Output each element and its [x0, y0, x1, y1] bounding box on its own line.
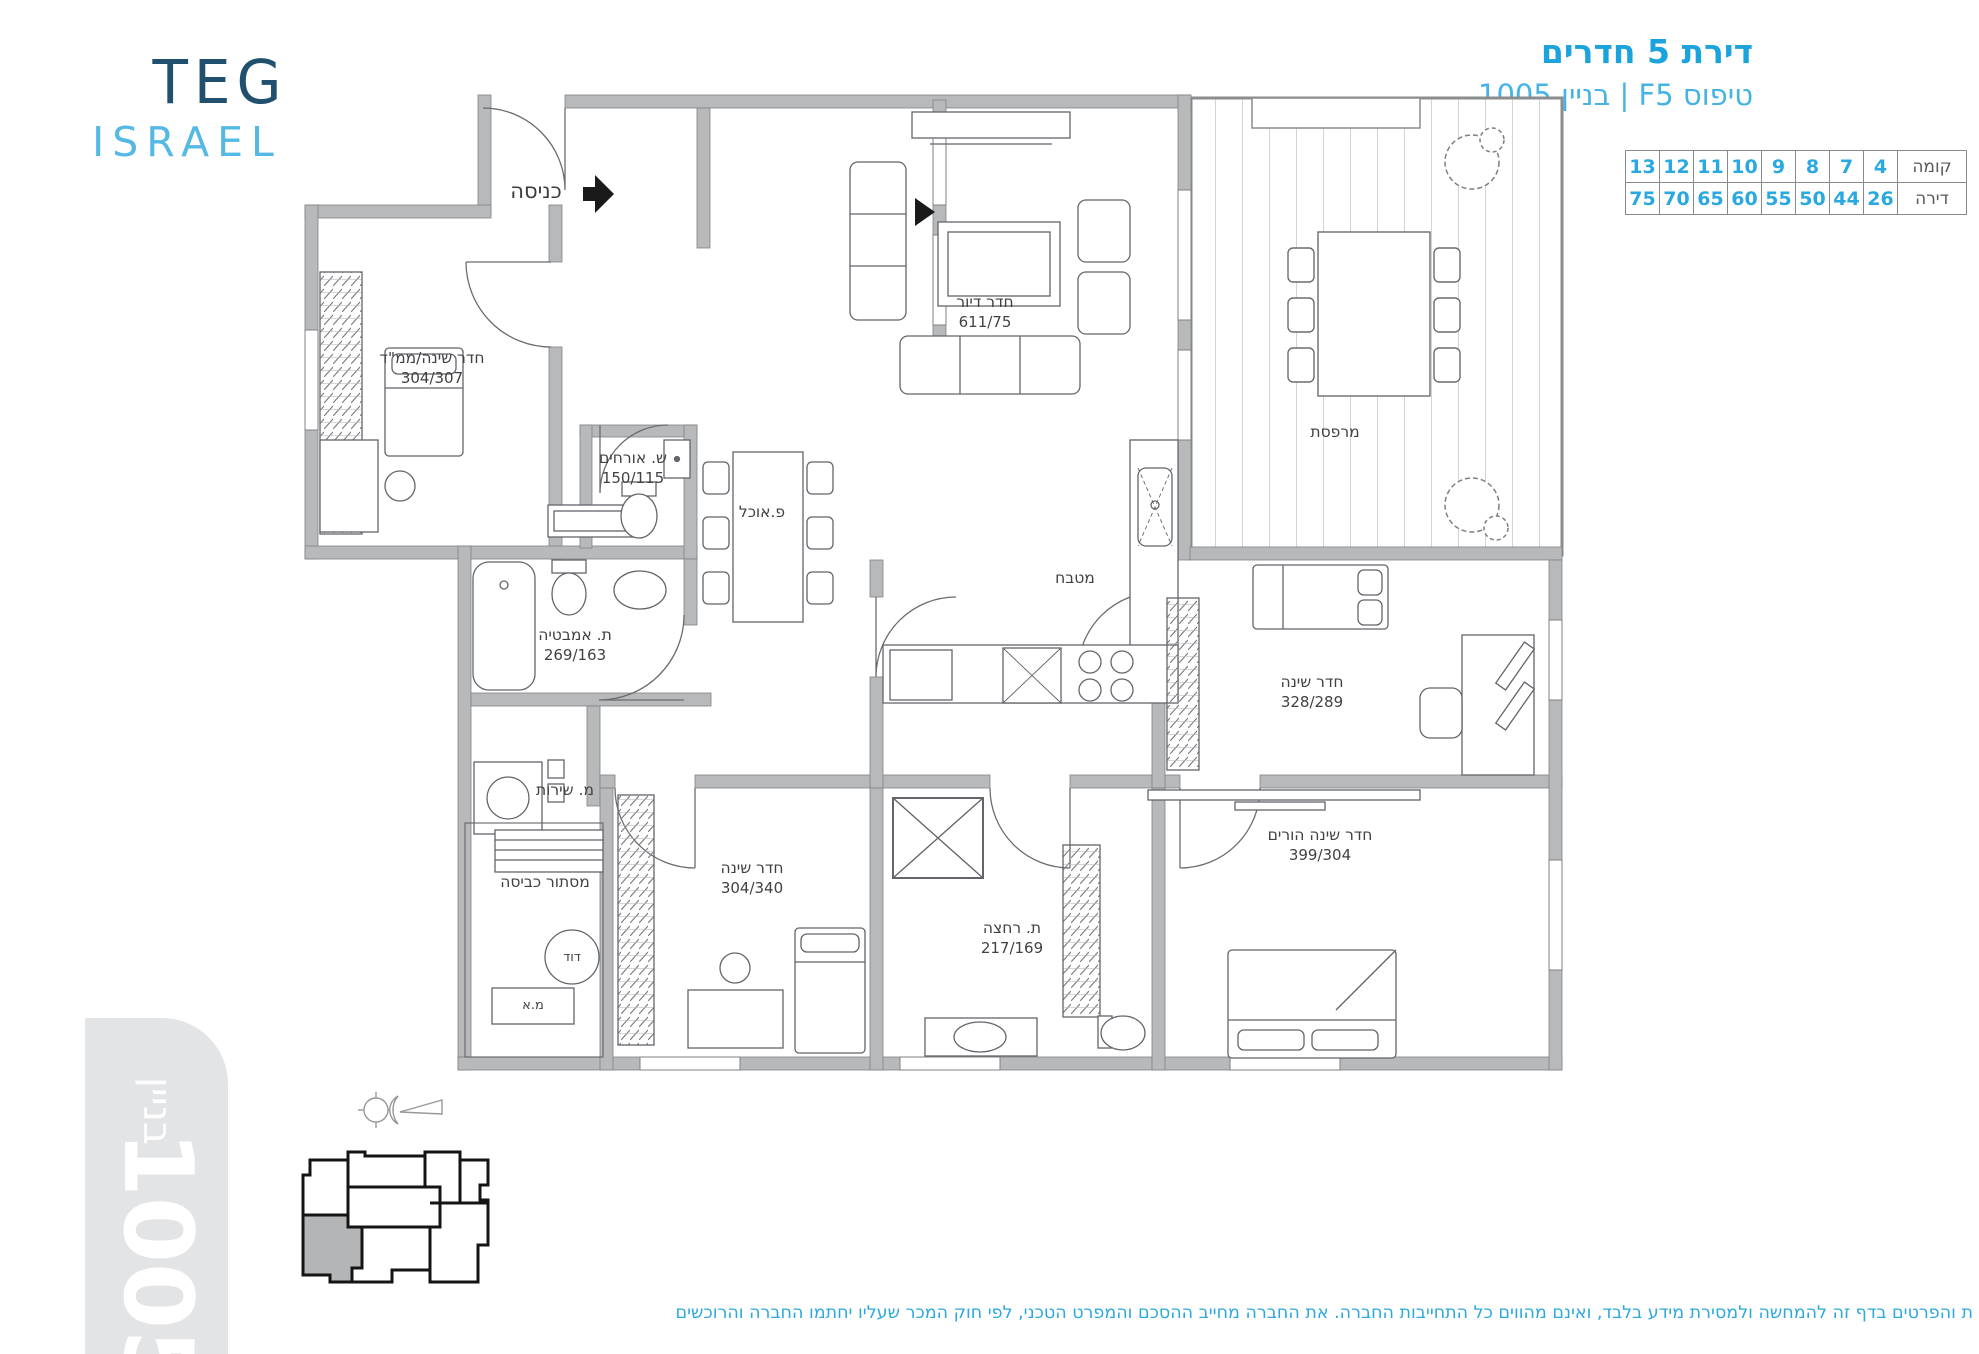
planter-box	[1252, 98, 1420, 128]
floor-plan-drawing	[0, 0, 1979, 1354]
room-label-parents: חדר שינה הורים 399/304	[1220, 825, 1420, 865]
room-name: מסתור כביסה	[500, 873, 589, 891]
room-name: חדר שינה	[1280, 673, 1343, 691]
room-name: ש. אורחים	[599, 449, 667, 467]
bed-bed2	[795, 928, 865, 1053]
bed-parents	[1228, 950, 1396, 1058]
room-label-service: מ. שירות	[500, 780, 630, 800]
room-label-bath: ת. אמבטיה 269/163	[475, 625, 675, 665]
balcony-group	[1191, 98, 1562, 555]
room-label-mamad: חדר שינה/ממ"ד 304/307	[332, 348, 532, 388]
fridge	[890, 650, 952, 700]
room-label-kitchen: מטבח	[990, 568, 1160, 588]
tv-parents	[1148, 790, 1420, 810]
north-arrow	[358, 1092, 442, 1128]
badge-building-number: 1005	[102, 1131, 212, 1354]
room-name: חדר שינה הורים	[1268, 826, 1373, 844]
room-name: ת. רחצה	[983, 919, 1041, 937]
room-dims: 304/307	[332, 368, 532, 388]
sofa-main	[900, 336, 1080, 394]
room-label-living: חדר דיור 611/75	[885, 292, 1085, 332]
laundry-shaft	[465, 823, 603, 1057]
entrance-label: כניסה	[492, 179, 580, 203]
armchair	[1078, 200, 1130, 262]
desk-bed2	[688, 953, 783, 1048]
room-dims: 611/75	[885, 312, 1085, 332]
room-label-dining: פ.אוכל	[712, 502, 812, 522]
room-name: מרפסת	[1310, 423, 1359, 441]
armchair	[1078, 272, 1130, 334]
building-badge: בניין 1005	[85, 1018, 228, 1354]
balcony-exit-arrow	[915, 198, 935, 226]
toilet-bath2	[1098, 1016, 1145, 1050]
desk-bed3	[1420, 635, 1534, 775]
toilet-guest	[621, 482, 657, 538]
room-dims: 304/340	[652, 878, 852, 898]
ac-label: מ.א	[503, 998, 563, 1013]
boiler-label: דוד	[542, 950, 602, 965]
room-name: מטבח	[1055, 569, 1095, 587]
room-dims: 150/115	[538, 468, 728, 488]
room-name: מ.א	[522, 998, 544, 1013]
room-name: חדר דיור	[956, 293, 1013, 311]
room-name: דוד	[563, 950, 581, 965]
room-name: מ. שירות	[536, 781, 594, 799]
room-label-balcony: מרפסת	[1235, 422, 1435, 442]
floorplan-sheet: TEG ISRAEL דירת 5 חדרים טיפוס F5 | בניין…	[0, 0, 1979, 1354]
room-dims: 399/304	[1220, 845, 1420, 865]
room-dims: 328/289	[1212, 692, 1412, 712]
toilet-bath	[552, 560, 586, 615]
closet-bed3	[1167, 598, 1199, 770]
balcony-dining-table	[1288, 232, 1460, 396]
bed-bed3	[1253, 565, 1388, 629]
room-name: ת. אמבטיה	[538, 626, 612, 644]
room-name: פ.אוכל	[739, 503, 785, 521]
room-name: חדר שינה	[720, 859, 783, 877]
room-label-bed2: חדר שינה 304/340	[652, 858, 852, 898]
sink-bath	[614, 571, 666, 609]
disclaimer-text: ת והפרטים בדף זה להמחשה ולמסירת מידע בלב…	[676, 1303, 1973, 1323]
room-dims: 217/169	[912, 938, 1112, 958]
vanity-bath2	[925, 1018, 1037, 1056]
entrance-arrow	[583, 175, 614, 213]
room-label-bed3: חדר שינה 328/289	[1212, 672, 1412, 712]
room-name: חדר שינה/ממ"ד	[380, 349, 485, 367]
room-label-laundry: מסתור כביסה	[465, 872, 625, 892]
room-label-bath2: ת. רחצה 217/169	[912, 918, 1112, 958]
ventilation-shaft	[893, 798, 983, 878]
room-dims: 269/163	[475, 645, 675, 665]
closet-bed2	[618, 795, 654, 1045]
building-key-plan	[303, 1152, 488, 1282]
room-label-guest-wc: ש. אורחים 150/115	[538, 448, 728, 488]
